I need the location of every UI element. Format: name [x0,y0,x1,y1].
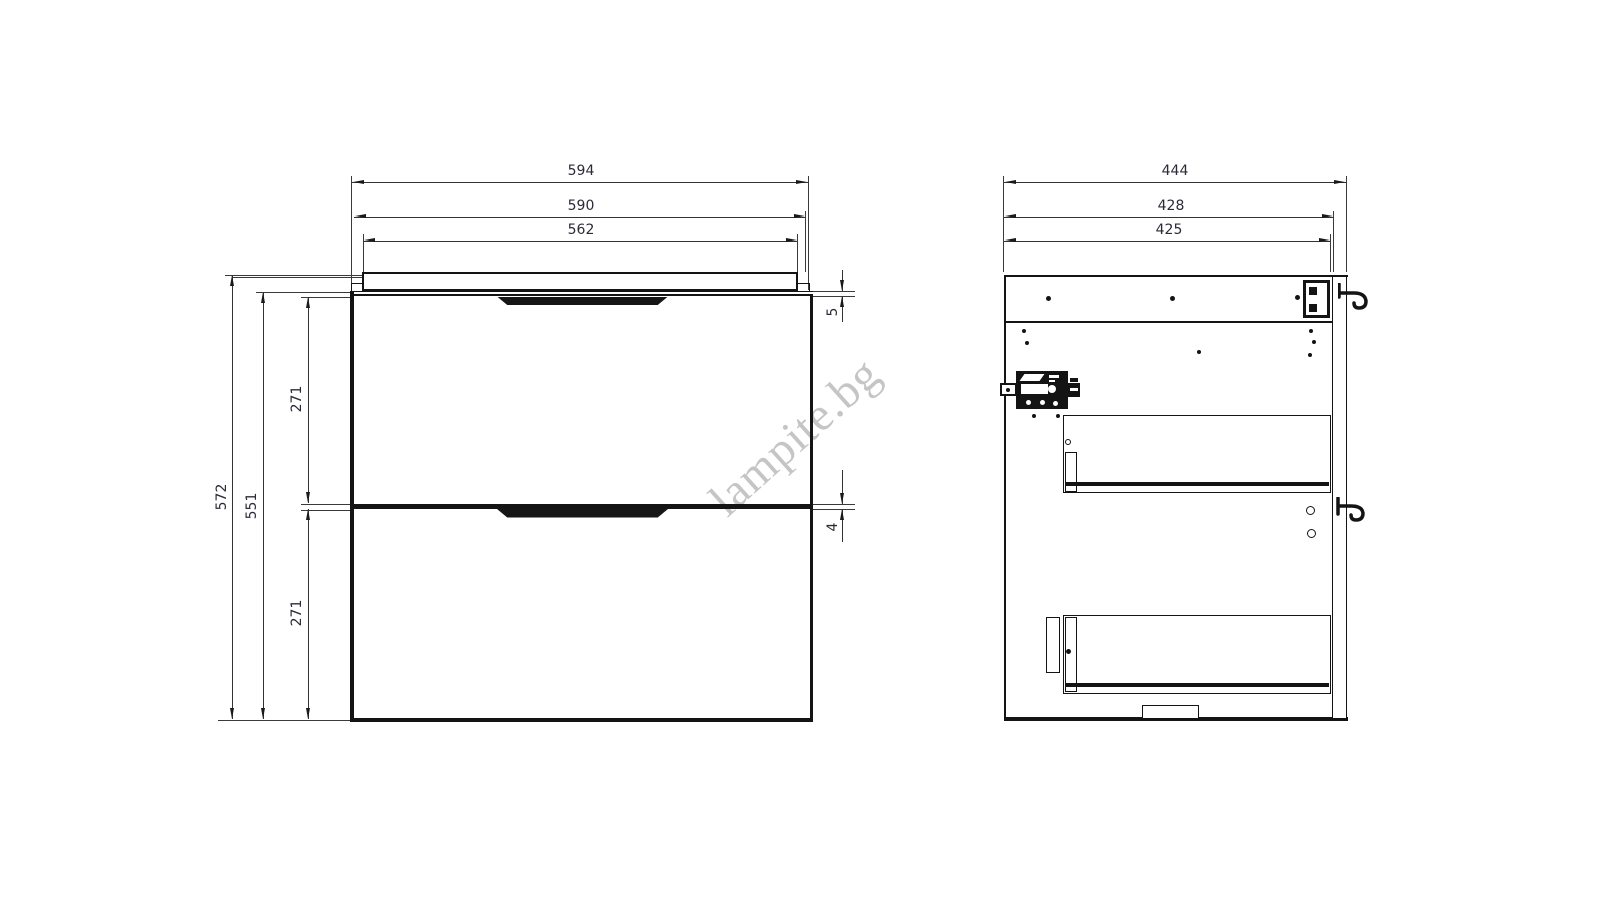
arrowhead [1334,180,1345,184]
arrowhead [1322,214,1333,218]
witness-line [1333,211,1334,272]
screw-hole-dot [1056,414,1060,418]
screw-hole-dot [1308,353,1312,357]
adjustment-hole [1307,529,1316,538]
technical-drawing-canvas: lampite.bg 594 590 562 [0,0,1600,900]
dim-side-overall-depth-line [1004,182,1346,183]
screw-hole-dot [1312,340,1316,344]
hanger-hook-bottom [1336,497,1372,525]
side-view: 444 428 425 [0,0,1600,900]
upper-drawer-front-wall-hatch [1065,452,1077,492]
dim-side-inner-depth-line [1004,241,1331,242]
witness-line [1003,176,1004,272]
upper-drawer-bottom-panel [1065,482,1329,487]
arrowhead [1005,238,1016,242]
wall-bracket [1303,280,1330,318]
screw-hole-dot [1025,341,1029,345]
slide-detail [1049,375,1059,378]
witness-line [1346,176,1347,272]
dim-side-inner-depth-label: 425 [1156,222,1183,238]
dim-side-carcass-depth-line [1004,217,1334,218]
lower-drawer-back-wall-hatch [1318,617,1330,692]
adjustment-hole [1306,506,1315,515]
cabinet-front-edge [1004,275,1006,720]
dim-side-carcass-depth-label: 428 [1158,198,1185,214]
arrowhead [1005,214,1016,218]
slide-front-rivet [1006,388,1010,392]
upper-drawer-back-wall-hatch [1318,417,1330,492]
slide-detail [1049,380,1055,382]
arrowhead [1005,180,1016,184]
slide-rear-gap [1070,388,1078,391]
wall-bracket-pad [1309,287,1317,295]
slide-rivet [1040,400,1045,405]
lower-drawer-front-wall-hatch [1065,617,1077,692]
lower-drawer-screw [1066,649,1071,654]
screw-hole-dot [1022,329,1026,333]
cabinet-top-edge [1004,275,1348,277]
screw-hole-dot [1295,295,1300,300]
top-rail-bottom-edge [1005,321,1333,323]
lower-drawer-bottom-panel [1065,683,1329,688]
arrowhead [1319,238,1330,242]
wall-bracket-pad [1309,304,1317,312]
slide-rear-tab [1070,378,1078,382]
lower-drawer-front-rail-hatch [1046,617,1060,673]
upper-drawer-screw [1065,439,1071,445]
screw-hole-dot [1046,296,1051,301]
dim-side-overall-depth-label: 444 [1162,163,1189,179]
slide-rivet [1053,401,1058,406]
screw-hole-dot [1309,329,1313,333]
slide-rivet [1026,400,1031,405]
hanger-hook-top [1338,283,1376,315]
screw-hole-dot [1170,296,1175,301]
slide-roller [1048,385,1056,393]
slide-slot [1021,384,1048,394]
bottom-rail-section [1142,705,1199,719]
screw-hole-dot [1197,350,1201,354]
screw-hole-dot [1032,414,1036,418]
